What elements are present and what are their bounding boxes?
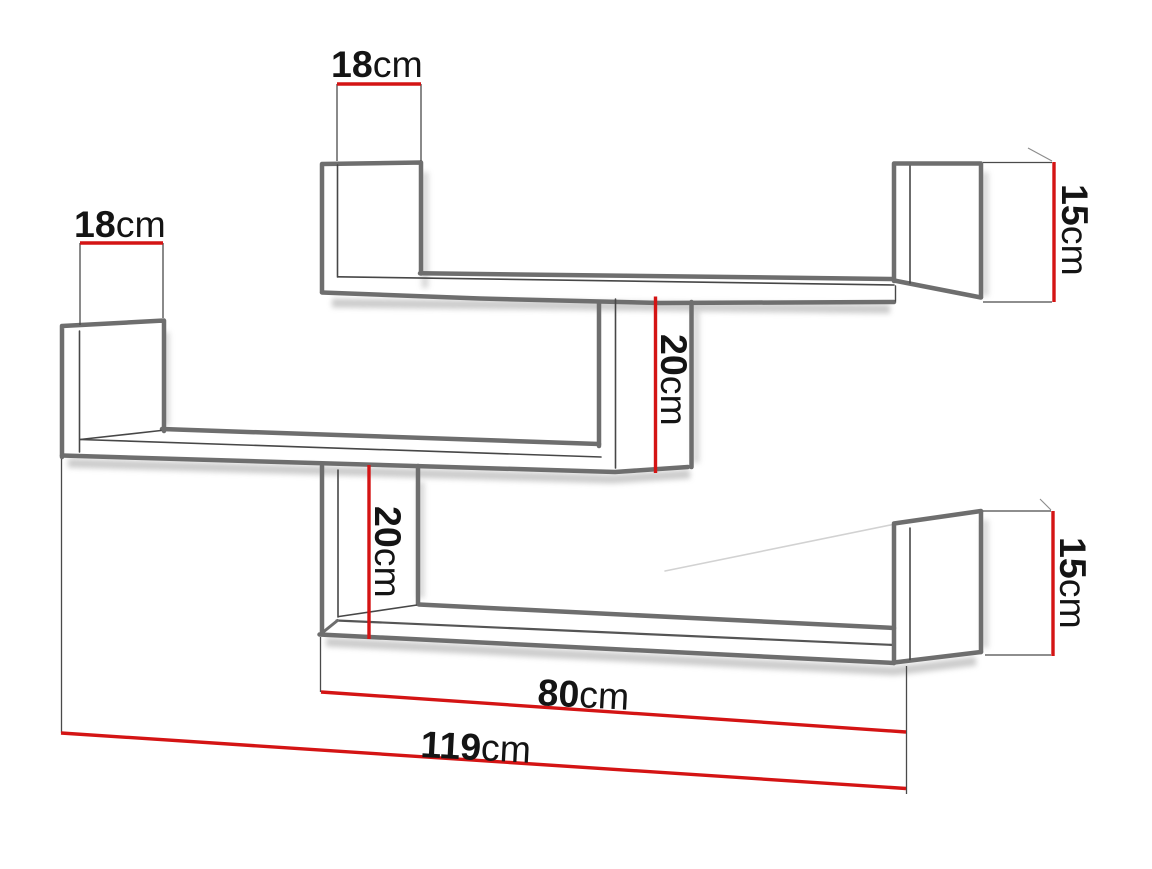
svg-text:80cm: 80cm bbox=[537, 671, 631, 718]
svg-text:18cm: 18cm bbox=[74, 203, 166, 245]
svg-text:119cm: 119cm bbox=[420, 723, 533, 771]
svg-text:15cm: 15cm bbox=[1054, 184, 1096, 276]
svg-text:20cm: 20cm bbox=[367, 506, 409, 598]
svg-text:15cm: 15cm bbox=[1052, 537, 1094, 629]
svg-text:20cm: 20cm bbox=[653, 334, 695, 426]
svg-text:18cm: 18cm bbox=[331, 43, 423, 85]
